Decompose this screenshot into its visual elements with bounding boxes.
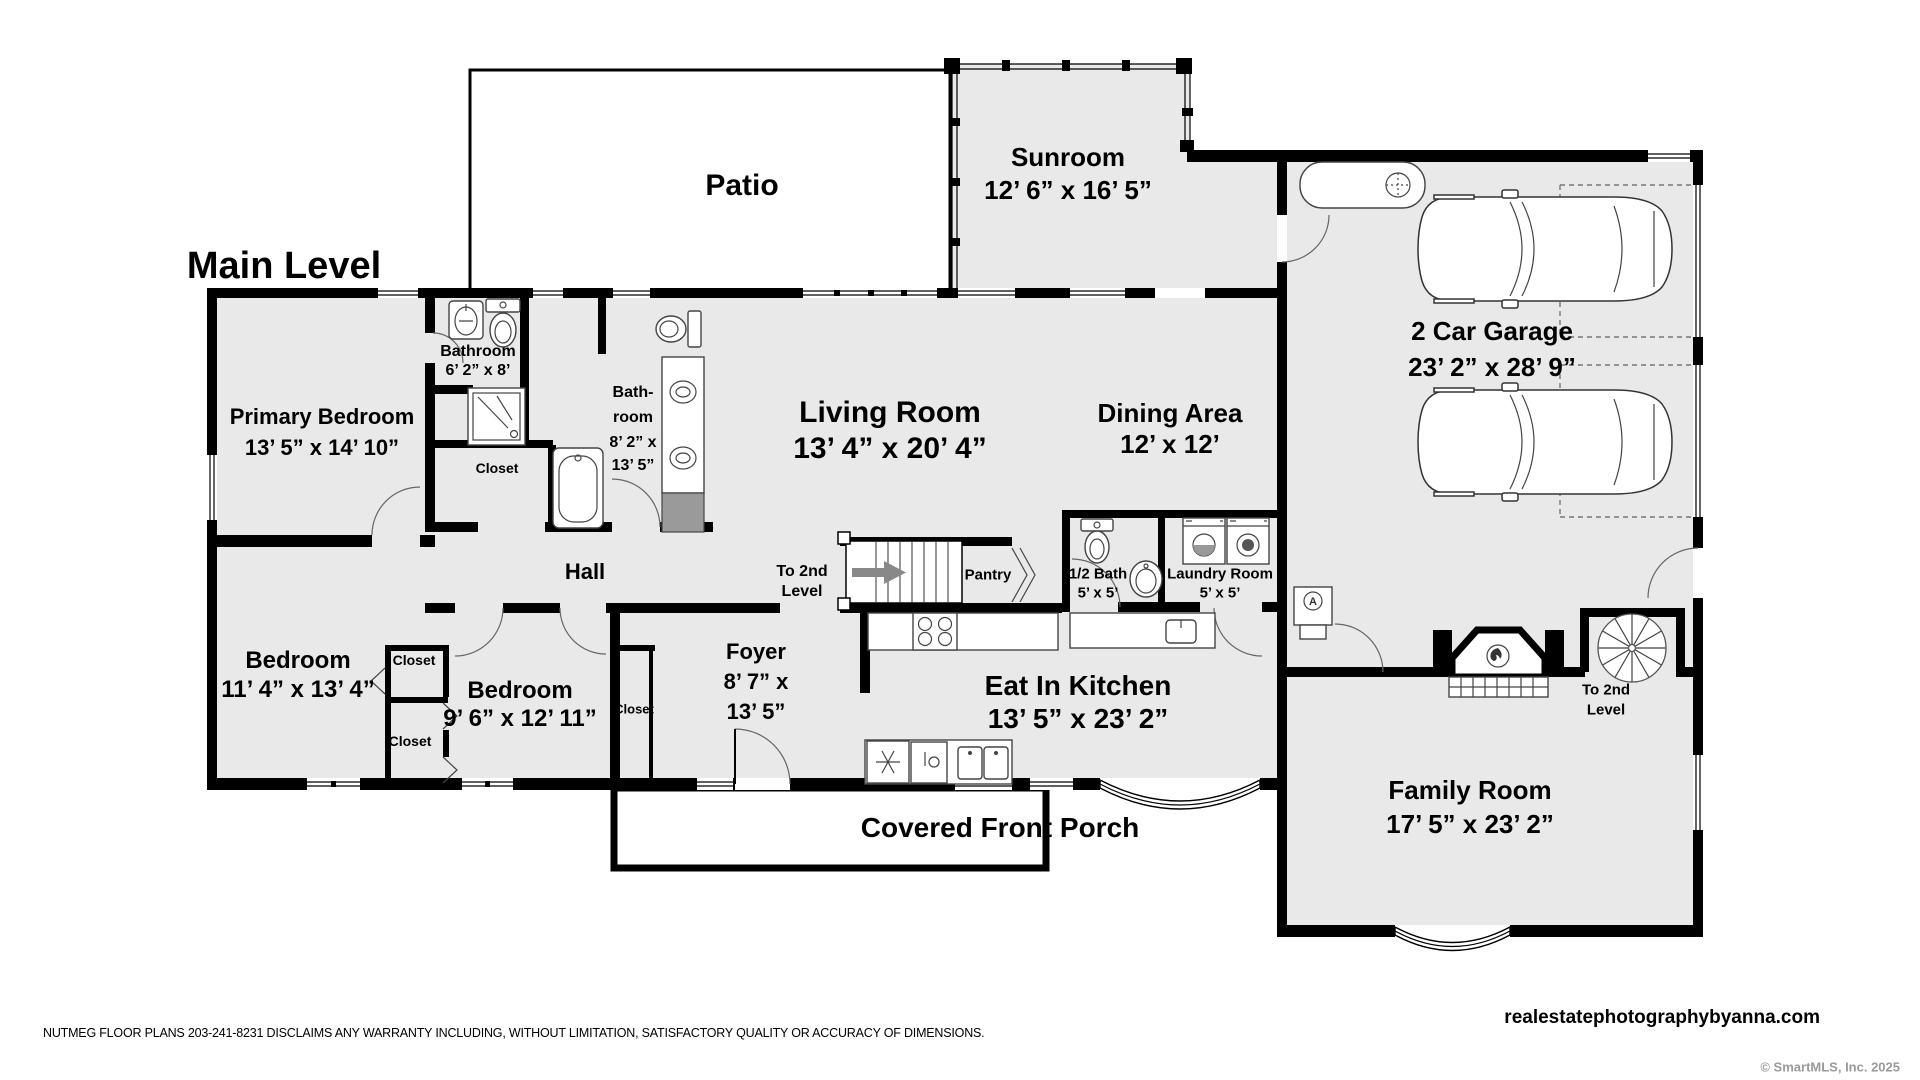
pantry-label: Pantry	[965, 568, 1012, 583]
bathtub	[553, 448, 603, 528]
stairs-spiral-label-1: To 2nd	[1582, 683, 1630, 698]
bedroom1-label: Bedroom	[245, 649, 350, 673]
sunroom-dims: 12’ 6” x 16’ 5”	[984, 177, 1152, 203]
car-2	[1418, 383, 1672, 501]
bathroom-dims: 6’ 2” x 8’	[446, 363, 511, 379]
disclaimer-text: NUTMEG FLOOR PLANS 203-241-8231 DISCLAIM…	[43, 1026, 984, 1040]
car-1	[1418, 190, 1672, 308]
family-room-dims: 17’ 5” x 23’ 2”	[1386, 811, 1554, 837]
bathroom2-label-1: Bath-	[613, 385, 654, 401]
copyright-text: © SmartMLS, Inc. 2025	[1760, 1060, 1900, 1075]
stairs-main-label-1: To 2nd	[776, 564, 827, 580]
page-title: Main Level	[187, 247, 381, 285]
laundry-dims: 5’ x 5’	[1200, 586, 1241, 601]
website-text: realestatephotographybyanna.com	[1504, 1007, 1820, 1029]
closet-primary-label: Closet	[476, 461, 519, 475]
bow-window-family	[1395, 925, 1510, 951]
bathroom2-label-4: 13’ 5”	[612, 458, 655, 474]
foyer-dims-2: 13’ 5”	[727, 701, 786, 723]
bathroom2-label-3: 8’ 2” x	[609, 435, 656, 451]
water-tank	[1300, 162, 1425, 208]
kitchen-label: Eat In Kitchen	[985, 672, 1172, 700]
foyer-dims-1: 8’ 7” x	[724, 671, 789, 693]
garage-label: 2 Car Garage	[1411, 318, 1573, 344]
laundry-label: Laundry Room	[1167, 567, 1273, 582]
stairs-main-label-2: Level	[782, 584, 823, 600]
bow-window-kitchen	[1100, 778, 1260, 809]
svg-text:A: A	[1309, 596, 1317, 608]
stairs-spiral	[1598, 614, 1666, 682]
kitchen-dims: 13’ 5” x 23’ 2”	[988, 705, 1169, 733]
primary-bedroom-label: Primary Bedroom	[230, 406, 415, 428]
garage-dims: 23’ 2” x 28’ 9”	[1408, 354, 1576, 380]
patio-label: Patio	[705, 171, 778, 201]
bathroom2-label-2: room	[613, 410, 653, 426]
furnace: A	[1294, 587, 1332, 639]
sunroom-label: Sunroom	[1011, 144, 1125, 170]
living-room-dims: 13’ 4” x 20’ 4”	[793, 434, 987, 464]
hall-label: Hall	[565, 561, 605, 583]
porch-label: Covered Front Porch	[861, 814, 1139, 842]
primary-bedroom-dims: 13’ 5” x 14’ 10”	[245, 437, 399, 459]
bedroom2-label: Bedroom	[467, 679, 572, 703]
shower	[468, 388, 525, 445]
bathroom-label: Bathroom	[440, 344, 516, 360]
floor-plan-page: A Main Level Patio Sunroom 12’ 6” x 16’ …	[0, 0, 1920, 1080]
foyer-label: Foyer	[726, 641, 786, 663]
bedroom2-dims: 9’ 6” x 12’ 11”	[443, 707, 596, 731]
half-bath-label: 1/2 Bath	[1069, 567, 1127, 582]
half-bath-dims: 5’ x 5’	[1078, 586, 1119, 601]
closet-b-label: Closet	[389, 734, 432, 748]
stairs-spiral-label-2: Level	[1587, 703, 1625, 718]
living-room-label: Living Room	[799, 398, 981, 428]
dining-area-dims: 12’ x 12’	[1120, 431, 1220, 457]
floor-plan-drawing: A	[0, 0, 1920, 1080]
stairs-main	[838, 532, 962, 610]
closet-foyer-label: Closet	[614, 703, 654, 716]
dining-area-label: Dining Area	[1098, 400, 1243, 426]
closet-a-label: Closet	[393, 653, 436, 667]
family-room-label: Family Room	[1388, 777, 1551, 803]
bedroom1-dims: 11’ 4” x 13’ 4”	[221, 678, 374, 702]
